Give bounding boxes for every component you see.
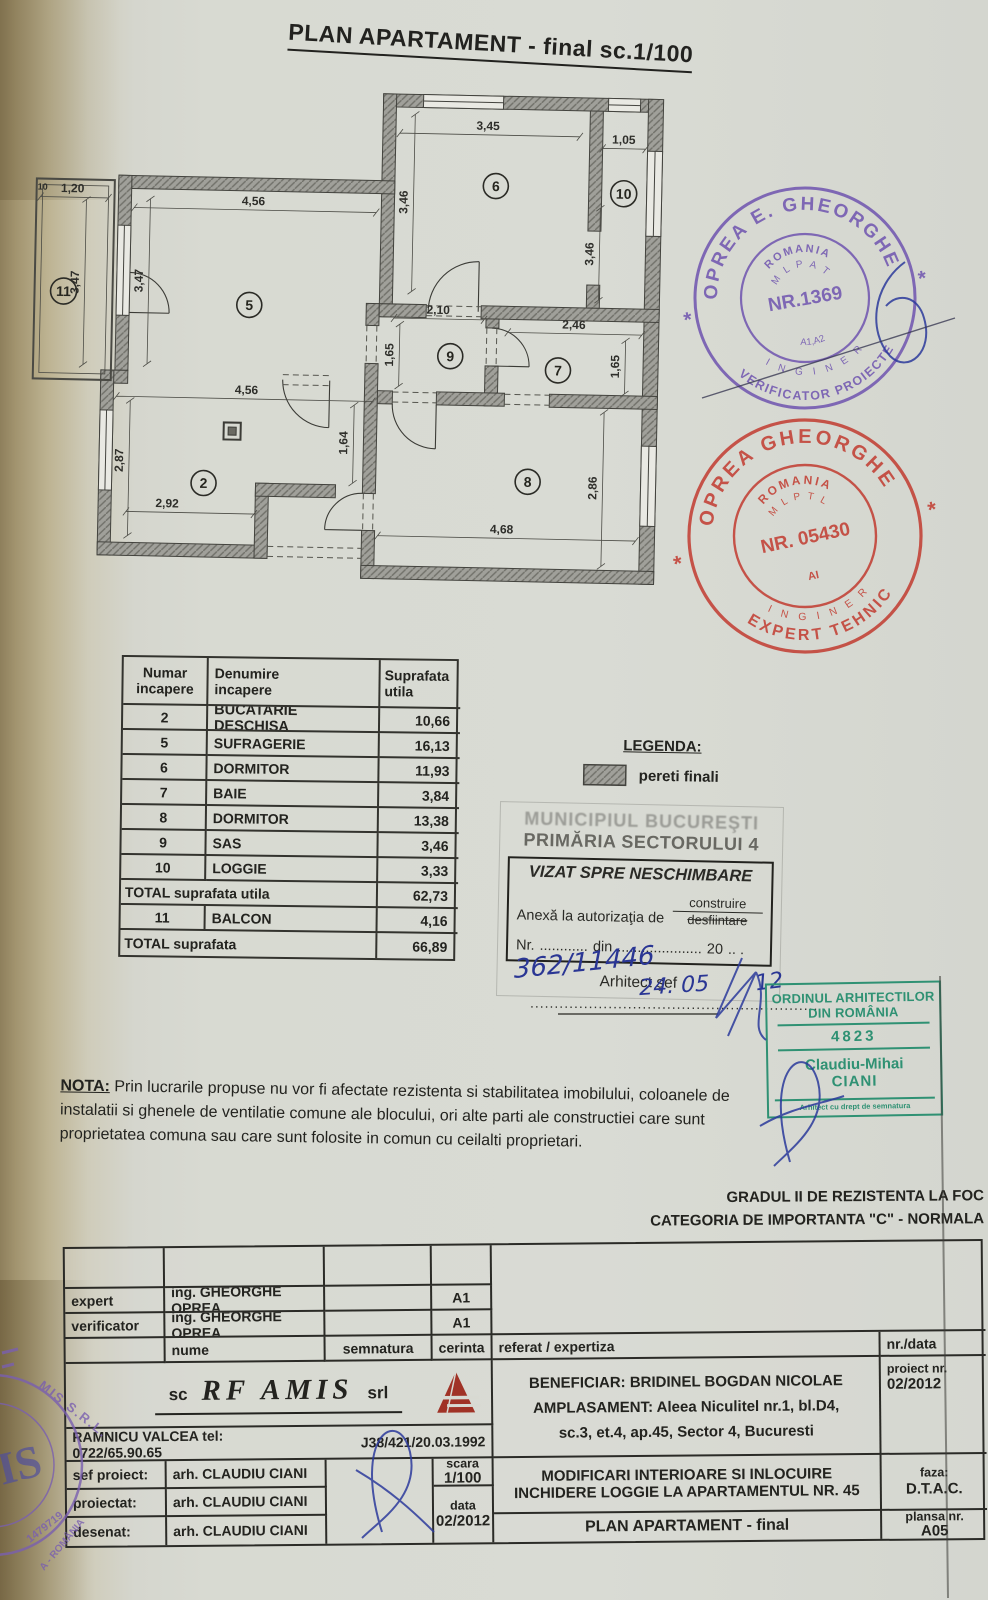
room-area-cell: 10,66 [380,708,460,734]
stamp-star-right: * [925,496,939,522]
legend-item-label: pereti finali [639,767,719,785]
amplasament-line2: sc.3, et.4, ap.45, Sector 4, Bucuresti [559,1420,814,1443]
year-prefix: 20 [707,941,723,957]
scanned-floor-plan-document: { "title": "PLAN APARTAMENT - final sc.1… [0,0,988,1600]
beneficiar-cell: BENEFICIAR: BRIDINEL BOGDAN NICOLAE AMPL… [493,1357,882,1458]
company-prefix: sc [169,1384,188,1404]
fire-line1: GRADUL II DE REZISTENTA LA FOC [478,1184,984,1211]
room-number: 6 [492,178,500,194]
expert-signature-cell [325,1286,432,1312]
fire-line2: CATEGORIA DE IMPORTANTA "C" - NORMALA [478,1207,984,1234]
room-area-cell: 3,33 [378,858,458,884]
dim-label: 4,56 [242,194,266,208]
empty-cell [492,1241,986,1335]
plansa-nr-cell: plansa nr. A05 [882,1510,987,1539]
dim-label: 1,05 [612,132,636,146]
nota-text: Prin lucrarile propuse nu vor fi afectat… [60,1078,730,1150]
shaft-symbol [223,422,240,439]
nota-paragraph: NOTA: Prin lucrarile propuse nu vor fi a… [59,1074,774,1157]
amplasament-line1: AMPLASAMENT: Aleea Niculitel nr.1, bl.D4… [533,1395,839,1419]
room-num-cell: 5 [123,730,208,756]
data-value: 02/2012 [436,1513,490,1530]
verificator-name: ing. GHEORGHE OPREA [165,1312,325,1338]
room-area-cell: 16,13 [380,733,460,759]
expert-name: ing. GHEORGHE OPREA [165,1287,325,1313]
empty-cell [432,1245,492,1286]
room-area-cell: 3,46 [378,833,458,859]
header-line: utila [384,683,413,699]
header-line: Numar [143,664,188,681]
room-name-cell: BALCON [205,906,377,933]
oar-number: 4823 [772,1027,936,1047]
proiect-label: proiect nr. [887,1361,948,1376]
room-num-cell: 2 [123,705,208,731]
stamp-star-left: * [671,550,685,576]
legend-title: LEGENDA: [623,737,775,757]
empty-cell [65,1248,165,1289]
vizat-box: VIZAT SPRE NESCHIMBARE Anexă la autoriza… [506,856,774,967]
year-dots: .. . [728,942,744,958]
dim-label: 1,65 [608,354,622,378]
svg-text:OPREA E. GHEORGHE: OPREA E. GHEORGHE [686,178,905,304]
empty-cell [165,1247,325,1288]
dim-label: 2,86 [585,476,599,500]
stamp-name-arc: OPREA GHEORGHE [680,406,902,532]
stamp-grades-arc: A1,A2 [798,333,827,350]
data-label: data [450,1499,476,1513]
proiectat-name: arh. CLAUDIU CIANI [167,1488,327,1517]
oar-line1: ORDINUL ARHITECTILOR [771,989,935,1007]
room-num-cell: 11 [120,905,205,931]
architects-order-stamp: ORDINUL ARHITECTILOR DIN ROMÂNIA 4823 Cl… [765,980,943,1118]
option-desfiintare: desfiintare [672,912,763,929]
dim-label: 2,87 [112,448,126,472]
empty-cell [325,1246,432,1287]
company-address-cell: RAMNICU VALCEA tel: 0722/65.90.65 J38/42… [66,1425,493,1462]
room-area-cell: 13,38 [379,808,459,834]
total-utila-value: 62,73 [378,883,458,909]
dim-label: 1,65 [382,343,396,367]
signature-underline [558,1013,718,1015]
oar-footer: Arhitect cu drept de semnatura [775,1097,935,1113]
plan-walls [97,88,664,585]
room-name-cell: LOGGIE [206,856,378,883]
title-block-table: expert ing. GHEORGHE OPREA A1 verificato… [63,1239,986,1548]
nr-label: Nr. [516,937,535,953]
seal-marks [2,1349,18,1367]
room-name-cell: SAS [206,831,378,858]
plansa-title-cell: PLAN APARTAMENT - final [494,1511,882,1542]
svg-text:OPREA GHEORGHE: OPREA GHEORGHE [680,406,902,532]
room-number: 9 [446,348,454,364]
stamp-star-left: * [682,308,695,332]
beneficiar-line: BENEFICIAR: BRIDINEL BOGDAN NICOLAE [529,1370,843,1394]
column-header: Denumire incapere [208,658,381,708]
dim-label: 1,20 [61,181,85,195]
oar-divider [778,1022,930,1027]
proiect-nr-cell: proiect nr. 02/2012 [881,1356,987,1455]
header-line: Suprafata [385,667,450,684]
faza-label: faza: [920,1465,949,1480]
room-name-cell: BAIE [207,781,379,808]
fire-resistance-note: GRADUL II DE REZISTENTA LA FOC CATEGORIA… [478,1184,984,1234]
seal-monogram: IS [0,1435,47,1495]
header-line: Denumire [215,665,280,682]
total-label: TOTAL suprafata [120,930,377,958]
oar-line2: DIN ROMÂNIA [771,1004,935,1022]
page-title: PLAN APARTAMENT - final sc.1/100 [287,19,694,74]
floor-plan-drawing: 3,45 1,05 3,46 3,46 4,56 3,47 3,47 1,20 … [19,78,676,656]
scara-value: 1/100 [444,1470,482,1486]
city-hall-visa-stamp: MUNICIPIUL BUCUREŞTI PRIMĂRIA SECTORULUI… [496,801,784,1002]
dim-label: 3,46 [396,190,410,214]
vizat-title: VIZAT SPRE NESCHIMBARE [517,862,763,886]
architect-signature-cell [327,1459,435,1544]
referat-header: referat / expertiza [492,1332,880,1360]
wall-hatch-swatch [583,764,627,787]
svg-text:A1,A2: A1,A2 [798,333,827,350]
room-num-cell: 10 [121,855,206,881]
annex-label: Anexă la autorizaţia de [517,907,665,926]
dim-label: 10 [38,181,48,191]
nr-data-header: nr./data [880,1331,985,1357]
seal-company-arc: MIS S.R.L. [36,1378,111,1441]
stamp-grades: AI [807,569,820,583]
room-name-cell: SUFRAGERIE [208,731,380,758]
room-num-cell: 9 [121,830,206,856]
dim-label: 3,45 [476,119,500,133]
expert-cerinta: A1 [432,1285,492,1311]
dim-label: 1,64 [336,431,350,455]
room-number: 10 [616,186,632,202]
dim-label: 2,10 [426,303,450,317]
verificator-signature-cell [325,1311,432,1337]
option-construire: construire [672,895,763,914]
room-area-cell: 3,84 [379,783,459,809]
column-header: Suprafata utila [380,660,461,709]
company-round-seal-partial: MIS S.R.L. 1479719 A - ROMÂNIA IS [0,1325,115,1600]
data-cell: data 02/2012 [434,1486,494,1543]
room-num-cell: 7 [122,780,207,806]
room-number: 2 [199,475,207,491]
room-number: 8 [524,474,532,490]
legend: LEGENDA: pereti finali [555,736,776,789]
oar-divider [778,1047,930,1052]
room-area-cell: 4,16 [377,908,457,934]
oar-architect-last-name: CIANI [772,1072,936,1092]
expert-label: expert [65,1288,165,1314]
stamp-star-right: * [916,267,929,291]
room-name-cell: DORMITOR [207,806,379,833]
room-name-cell: BUCATARIE DESCHISA [208,706,380,733]
company-name: RF AMIS [201,1373,353,1407]
header-line: incapere [136,680,194,697]
cerinta-header: cerinta [432,1335,492,1361]
scara-cell: scara 1/100 [434,1458,494,1487]
room-number: 5 [245,297,253,313]
dim-label: 2,46 [562,317,586,331]
total-value: 66,89 [377,933,457,959]
semnatura-header: semnatura [325,1336,432,1362]
proiect-value: 02/2012 [887,1376,941,1394]
stamp-number: NR.1369 [767,283,845,317]
column-header: Numar incapere [123,657,209,706]
dim-label: 3,46 [582,242,596,266]
lucrare-line2: INCHIDERE LOGGIE LA APARTAMENTUL NR. 45 [514,1482,860,1502]
plansa-value: A05 [921,1523,949,1539]
dim-label: 2,92 [155,496,179,510]
dim-label: 4,56 [235,383,259,397]
dim-label: 3,47 [132,268,146,292]
room-area-cell: 11,93 [379,758,459,784]
company-registration: J38/421/20.03.1992 [361,1433,486,1450]
nota-label: NOTA: [60,1077,110,1095]
sef-proiect-name: arh. CLAUDIU CIANI [167,1460,327,1489]
room-num-cell: 6 [122,755,207,781]
expert-round-stamp: OPREA GHEORGHE EXPERT TEHNIC ROMANIA M L… [648,388,962,688]
room-area-table: Numar incapere Denumire incapere Suprafa… [118,655,459,961]
room-name-cell: DORMITOR [207,756,379,783]
stamp-name-arc: OPREA E. GHEORGHE [686,178,905,304]
company-logo [435,1368,481,1416]
plansa-label: plansa nr. [905,1510,963,1523]
nume-header: nume [166,1337,326,1363]
desenat-name: arh. CLAUDIU CIANI [167,1516,327,1545]
room-num-cell: 8 [122,805,207,831]
header-line: incapere [214,681,272,698]
company-cell: sc RF AMIS srl [66,1360,494,1429]
room-number: 7 [554,362,562,378]
total-utila-label: TOTAL suprafata utila [121,880,378,908]
room-number: 11 [56,283,71,299]
company-suffix: srl [367,1383,388,1403]
faza-value: D.T.A.C. [906,1480,963,1498]
lucrare-cell: MODIFICARI INTERIOARE SI INLOCUIRE INCHI… [494,1455,882,1514]
dim-label: 4,68 [490,522,514,536]
stamp-number: NR. 05430 [759,519,852,558]
verificator-cerinta: A1 [432,1310,492,1336]
authority-line: PRIMĂRIA SECTORULUI 4 [500,829,782,856]
faza-cell: faza: D.T.A.C. [882,1454,987,1511]
